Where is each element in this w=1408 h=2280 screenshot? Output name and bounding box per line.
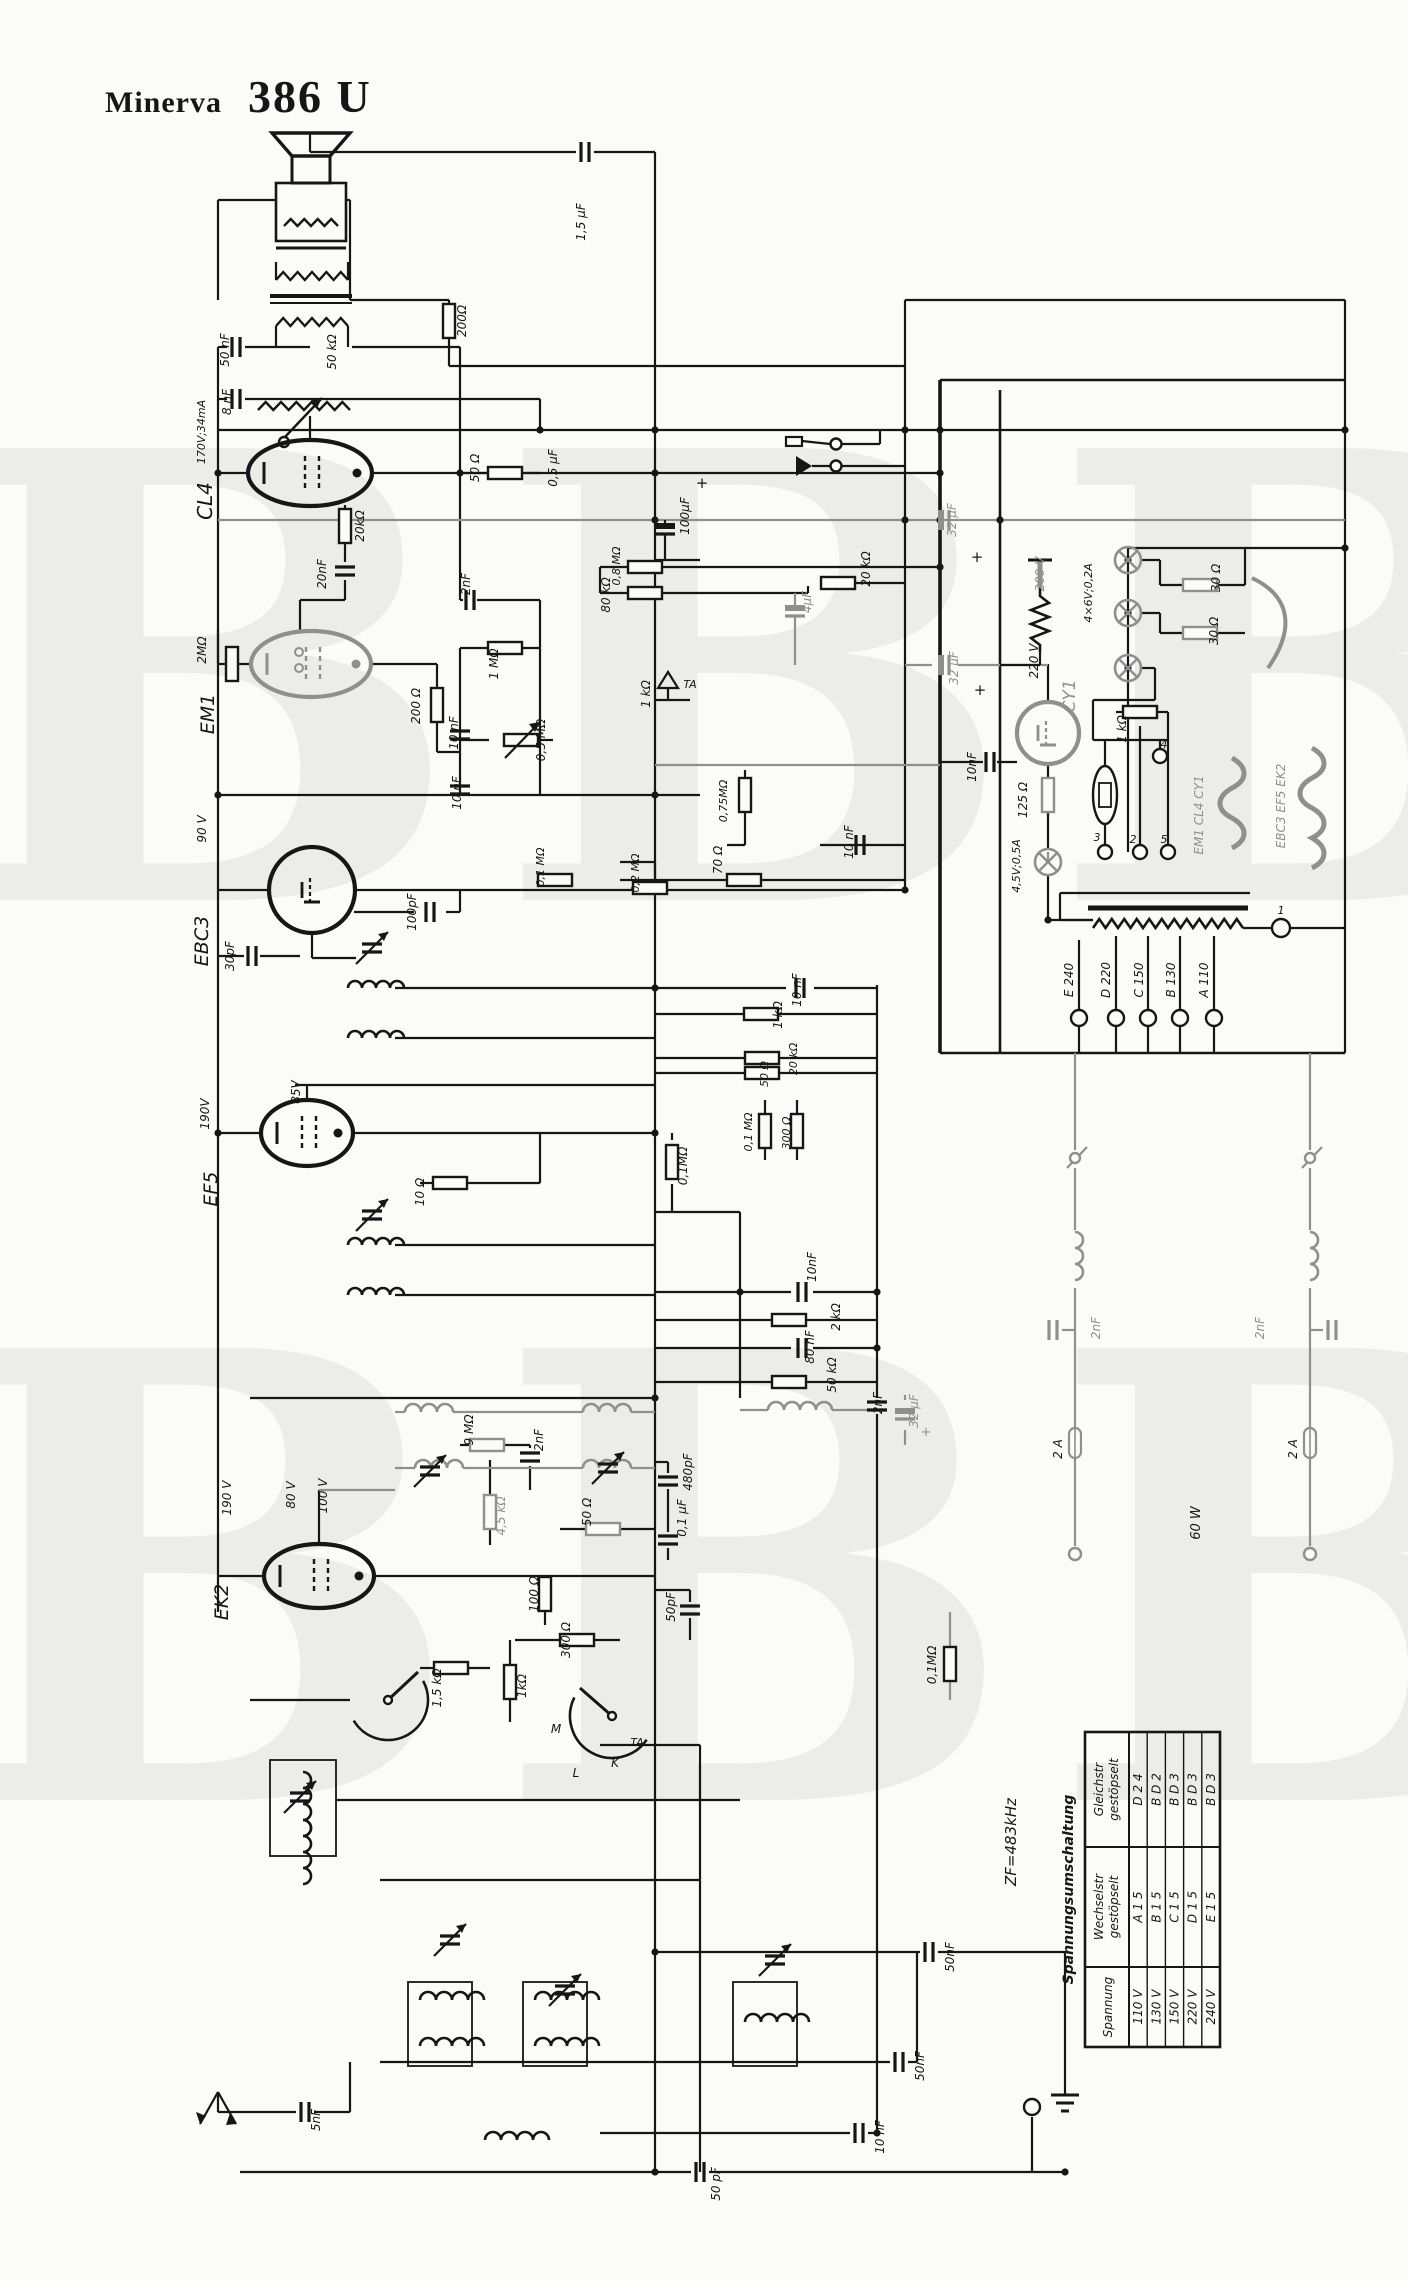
component-label: 30 Ω xyxy=(1209,563,1223,592)
component-label: 2nF xyxy=(459,572,473,595)
component-label: 4×6V;0,2A xyxy=(1082,563,1095,622)
component-label: 32 µF xyxy=(947,650,961,685)
terminal-circle xyxy=(1206,1010,1222,1026)
junction-dot xyxy=(901,886,908,893)
component-label: 20nF xyxy=(315,558,329,589)
resistor-symbol xyxy=(739,778,751,812)
table-cell: 150 V xyxy=(1168,1989,1182,2025)
component-label: CY1 xyxy=(1060,679,1080,712)
terminal-circle xyxy=(384,1696,392,1704)
junction-dot xyxy=(214,791,221,798)
component-label: CL4 xyxy=(193,482,217,520)
component-label: 50nF xyxy=(943,1941,957,1972)
component-label: 2nF xyxy=(1253,1316,1267,1339)
table-cell: 130 V xyxy=(1149,1989,1163,2025)
coil-symbol xyxy=(535,2038,599,2046)
component-label: 20 kΩ xyxy=(787,1042,800,1075)
zigzag-resistor-symbol xyxy=(284,219,338,226)
component-label: 10 nF xyxy=(450,775,464,810)
component-label: 50 kΩ xyxy=(825,1357,839,1393)
resistor-symbol xyxy=(339,509,351,543)
component-label: 10 nF xyxy=(790,972,804,1007)
terminal-circle xyxy=(1024,2099,1040,2115)
component-label: 0,2 MΩ xyxy=(629,853,642,892)
component-label: 3 xyxy=(1094,831,1101,844)
component-label: 2 kΩ xyxy=(829,1302,843,1330)
component-label: 50 kΩ xyxy=(325,334,339,370)
junction-dot xyxy=(1341,544,1348,551)
table-cell: 220 V xyxy=(1186,1989,1200,2025)
component-label: 2MΩ xyxy=(195,636,209,664)
component-label: 0,1 MΩ xyxy=(534,847,547,886)
component-label: 0,1MΩ xyxy=(676,1146,690,1185)
component-label: 2 A xyxy=(1051,1439,1065,1459)
component-label: 80 nF xyxy=(803,1329,817,1364)
schematic-page: Minerva 386 U BBBBBBBB 1,5 µF200Ω50 nF50… xyxy=(0,0,1408,2280)
junction-dot xyxy=(651,984,658,991)
component-label: + xyxy=(971,548,984,566)
component-label: 480pF xyxy=(681,1452,695,1491)
terminal-circle xyxy=(1172,1010,1188,1026)
component-label: + xyxy=(921,1425,932,1440)
resistor-symbol xyxy=(759,1114,771,1148)
component-label: 190 V xyxy=(220,1480,234,1516)
component-label: EBC3 EF5 EK2 xyxy=(1274,764,1288,849)
component-label: 200 V xyxy=(1033,556,1047,592)
terminal-circle xyxy=(1140,1010,1156,1026)
component-label: EBC3 xyxy=(191,916,213,966)
resistor-symbol xyxy=(433,1177,467,1189)
resistor-symbol xyxy=(431,688,443,722)
component-label: 4 xyxy=(1161,738,1168,751)
resistor-symbol xyxy=(821,577,855,589)
component-label: 0,1 MΩ xyxy=(742,1112,755,1151)
terminal-circle xyxy=(1305,1153,1315,1163)
component-label: 20 kΩ xyxy=(859,551,873,587)
component-label: 50 nF xyxy=(218,332,232,367)
component-label: 50 Ω xyxy=(580,1497,594,1526)
component-label: 9 MΩ xyxy=(462,1414,476,1446)
junction-dot xyxy=(651,791,658,798)
table-column-header: Gleichstrgestöpselt xyxy=(1092,1757,1121,1821)
component-label: C 150 xyxy=(1132,962,1146,997)
table-cell: B 1 5 xyxy=(1149,1891,1163,1922)
junction-dot xyxy=(873,1344,880,1351)
resistor-symbol xyxy=(443,304,455,338)
junction-dot xyxy=(901,426,908,433)
if-can-outline xyxy=(733,1982,797,2066)
component-label: 100pF xyxy=(405,892,419,931)
junction-dot xyxy=(936,563,943,570)
junction-dot xyxy=(651,426,658,433)
component-label: 30 Ω xyxy=(1207,616,1221,645)
component-label: 60 W xyxy=(1189,1505,1204,1540)
junction-dot xyxy=(651,516,658,523)
resistor-symbol xyxy=(226,647,238,681)
resistor-symbol xyxy=(488,467,522,479)
component-label: 2 A xyxy=(1286,1439,1300,1459)
table-cell: 240 V xyxy=(1204,1989,1218,2025)
component-label: L xyxy=(573,1766,580,1780)
component-label: 200Ω xyxy=(455,304,469,337)
component-label: 1kΩ xyxy=(515,1673,529,1698)
resistor-symbol xyxy=(628,561,662,573)
coil-symbol xyxy=(420,1992,484,2000)
tube-electrode xyxy=(352,660,361,669)
component-label: 50 pF xyxy=(709,2166,723,2201)
junction-dot xyxy=(873,1288,880,1295)
component-label: 100 Ω xyxy=(527,1575,541,1612)
component-label: E 240 xyxy=(1062,962,1076,997)
speaker-icon xyxy=(276,183,346,241)
component-label: 10 nF xyxy=(842,824,856,859)
terminal-circle xyxy=(1133,845,1147,859)
component-label: 170V;34mA xyxy=(195,400,208,464)
component-label: 50 Ω xyxy=(758,1060,771,1086)
table-cell: D 1 5 xyxy=(1186,1891,1200,1923)
terminal-circle xyxy=(1272,919,1290,937)
component-label: 70 Ω xyxy=(711,845,725,874)
component-label: ZF=483kHz xyxy=(1002,1797,1020,1887)
component-label: B 130 xyxy=(1164,962,1178,997)
brand-name: Minerva xyxy=(105,86,222,120)
component-label: 100µF xyxy=(678,496,692,535)
component-label: 10 nF xyxy=(873,2119,887,2154)
component-label: + xyxy=(974,681,987,699)
coil-symbol xyxy=(420,2038,484,2046)
table-cell: B D 2 xyxy=(1149,1773,1163,1806)
resistor-symbol xyxy=(1042,778,1054,812)
junction-dot xyxy=(996,516,1003,523)
component-label: 10nF xyxy=(965,751,979,782)
resistor-symbol xyxy=(772,1376,806,1388)
page-title: Minerva 386 U xyxy=(105,70,372,123)
terminal-circle xyxy=(1161,845,1175,859)
junction-dot xyxy=(651,2168,658,2175)
table-column-header: Wechselstrgestöpselt xyxy=(1092,1873,1121,1940)
terminal-circle xyxy=(1153,749,1167,763)
model-number: 386 U xyxy=(248,70,372,123)
table-cell: E 1 5 xyxy=(1204,1892,1218,1922)
component-label: 4,5V;0,5A xyxy=(1010,839,1023,892)
tube-electrode xyxy=(353,469,362,478)
component-label: 5nF xyxy=(309,2108,323,2131)
resistor-symbol xyxy=(628,587,662,599)
terminal-circle xyxy=(1069,1548,1081,1560)
tube-electrode xyxy=(334,1129,343,1138)
component-label: 1 kΩ xyxy=(771,1000,785,1028)
junction-dot xyxy=(651,1394,658,1401)
component-label: 8 nF xyxy=(220,388,234,415)
table-cell: D 2 4 xyxy=(1131,1773,1145,1805)
component-label: 0,75MΩ xyxy=(717,779,730,822)
component-label: 10 nF xyxy=(447,715,461,750)
component-label: 1 kΩ xyxy=(1115,714,1129,742)
component-label: 20kΩ xyxy=(353,509,367,541)
table-cell: A 1 5 xyxy=(1131,1891,1145,1923)
coil-symbol xyxy=(485,2132,549,2140)
watermark-text: BBBB xyxy=(0,1219,1408,1947)
component-label: 220 V xyxy=(1027,643,1041,679)
table-cell: B D 3 xyxy=(1186,1773,1200,1806)
component-label: 125 Ω xyxy=(1016,781,1030,818)
terminal-circle xyxy=(608,1712,616,1720)
component-label: + xyxy=(696,474,709,492)
component-label: 10 Ω xyxy=(413,1177,427,1206)
junction-dot xyxy=(651,469,658,476)
table-cell: B D 3 xyxy=(1204,1773,1218,1806)
component-label: 100 V xyxy=(316,1478,330,1514)
component-label: 5 xyxy=(1161,833,1168,846)
component-label: 0,1MΩ xyxy=(925,1645,939,1684)
component-label: 30pF xyxy=(223,940,237,971)
component-label: 1 xyxy=(1278,904,1285,917)
component-label: 1 MΩ xyxy=(487,648,501,680)
component-label: EM1 CL4 CY1 xyxy=(1192,775,1206,854)
component-label: 4,5 kΩ xyxy=(494,1496,508,1536)
component-label: 10nF xyxy=(805,1251,819,1282)
terminal-circle xyxy=(1304,1548,1316,1560)
terminal-circle xyxy=(1108,1010,1124,1026)
junction-dot xyxy=(936,426,943,433)
junction-dot xyxy=(1341,426,1348,433)
zigzag-resistor-symbol xyxy=(276,272,348,280)
component-label: 2nF xyxy=(1089,1316,1103,1339)
component-label: 32 µF xyxy=(945,502,959,537)
table-cell: B D 3 xyxy=(1168,1773,1182,1806)
component-label: 80 V xyxy=(284,1481,298,1509)
component-label: EM1 xyxy=(197,694,219,735)
resistor-symbol xyxy=(727,874,761,886)
component-label: 1,5 µF xyxy=(574,202,588,241)
component-label: 50 Ω xyxy=(468,453,482,482)
component-label: 50nF xyxy=(913,2050,927,2081)
component-label: TA xyxy=(683,678,696,691)
component-label: 300 Ω xyxy=(559,1621,573,1658)
component-label: EF5 xyxy=(200,1171,222,1206)
terminal-circle xyxy=(1070,1153,1080,1163)
component-label: 2nF xyxy=(871,1391,885,1414)
tube-electrode xyxy=(355,1572,364,1581)
junction-dot xyxy=(736,1288,743,1295)
table-column-header: Spannung xyxy=(1101,1976,1115,2037)
component-label: 0,5 MΩ xyxy=(534,718,548,761)
junction-dot xyxy=(214,469,221,476)
schematic-canvas: BBBBBBBB 1,5 µF200Ω50 nF50 kΩ8 nF170V;34… xyxy=(0,0,1408,2280)
terminal-circle xyxy=(1098,845,1112,859)
component-label: 1,5 kΩ xyxy=(430,1668,444,1708)
component-label: 90 V xyxy=(195,815,209,843)
junction-dot xyxy=(651,1948,658,1955)
component-label: 0,5 µF xyxy=(546,448,560,487)
coil-symbol xyxy=(745,2014,809,2022)
junction-dot xyxy=(651,1129,658,1136)
component-label: 80 kΩ xyxy=(599,577,613,613)
component-label: 50pF xyxy=(664,1591,678,1622)
component-label: 2nF xyxy=(532,1428,546,1451)
junction-dot xyxy=(1061,2168,1068,2175)
junction-dot xyxy=(901,516,908,523)
component-label: 4µF xyxy=(800,590,814,613)
terminal-circle xyxy=(831,461,842,472)
junction-dot xyxy=(214,1129,221,1136)
component-label: 200 Ω xyxy=(409,687,423,724)
component-label: 32 µF xyxy=(907,1393,921,1428)
component-label: 2 xyxy=(1130,833,1137,846)
component-label: 190V xyxy=(198,1098,212,1130)
resistor-symbol xyxy=(772,1314,806,1326)
component-label: D 220 xyxy=(1099,962,1113,998)
component-label: M xyxy=(551,1722,562,1736)
table-title: Spannungsumschaltung xyxy=(1061,1795,1077,1985)
table-cell: 110 V xyxy=(1131,1989,1145,2025)
component-label: 0,1 µF xyxy=(675,1498,689,1537)
component-label: A 110 xyxy=(1197,962,1211,998)
component-label: 1 kΩ xyxy=(639,679,653,707)
watermark-layer: BBBBBBBB xyxy=(0,319,1408,1947)
component-label: K xyxy=(611,1756,620,1770)
component-label: TA xyxy=(630,1736,643,1749)
junction-dot xyxy=(1044,916,1051,923)
junction-dot xyxy=(536,426,543,433)
speaker-icon xyxy=(292,156,330,183)
terminal-circle xyxy=(1071,1010,1087,1026)
table-cell: C 1 5 xyxy=(1168,1891,1182,1922)
component-label: EK2 xyxy=(211,1584,233,1621)
junction-dot xyxy=(936,469,943,476)
component-label: 85V xyxy=(289,1079,303,1103)
resistor-symbol xyxy=(944,1647,956,1681)
terminal-circle xyxy=(831,439,842,450)
component-label: 300 Ω xyxy=(780,1116,793,1149)
